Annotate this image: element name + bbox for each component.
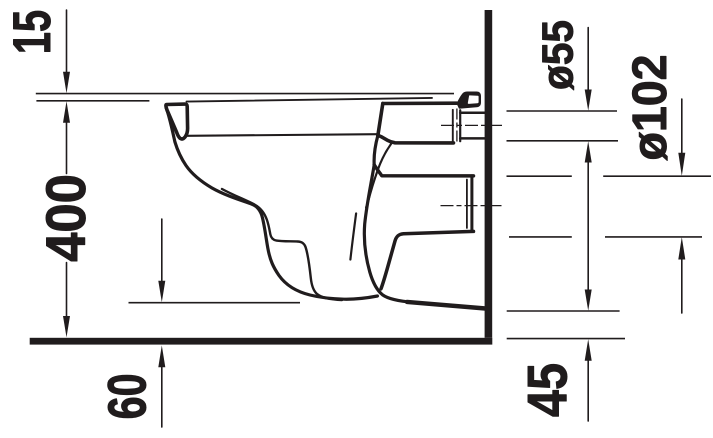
svg-text:400: 400: [34, 174, 97, 262]
svg-text:60: 60: [97, 373, 158, 419]
svg-text:45: 45: [518, 363, 580, 417]
svg-text:ø102: ø102: [624, 54, 678, 160]
svg-text:ø55: ø55: [533, 20, 582, 90]
svg-text:15: 15: [2, 10, 61, 54]
